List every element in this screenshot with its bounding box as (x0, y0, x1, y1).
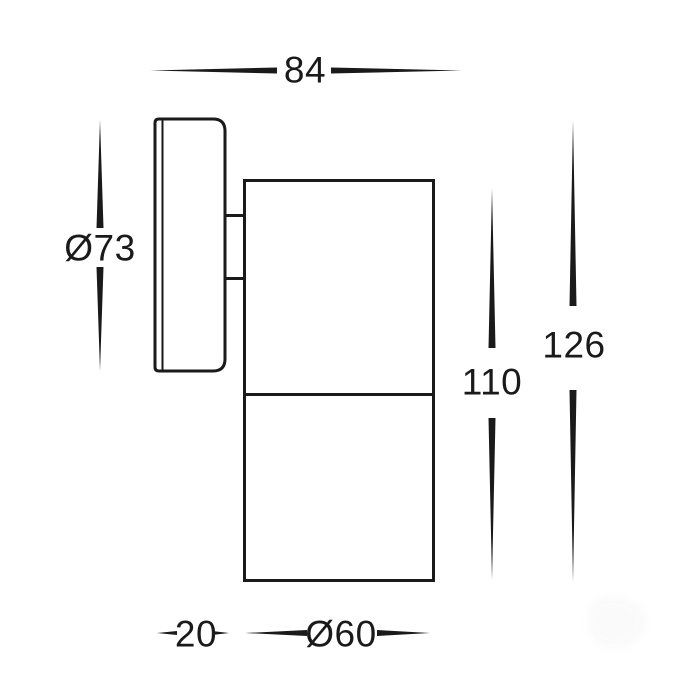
dim-60-right-taper (377, 630, 430, 636)
dim-label-overall-height: 126 (542, 327, 605, 364)
dim-60-left-taper (245, 630, 307, 636)
dim-84-left-taper (150, 68, 277, 74)
body-cylinder-outline (245, 181, 434, 581)
dim-110-bottom-taper (489, 418, 496, 580)
dim-73-bottom-taper (97, 267, 104, 371)
dim-126-bottom-taper (570, 390, 577, 582)
dim-73-top-taper (97, 120, 104, 228)
technical-drawing-canvas: 84 Ø73 110 126 20 Ø60 (0, 0, 700, 700)
dim-label-overall-depth: 84 (284, 52, 326, 89)
dim-110-top-taper (489, 188, 496, 348)
dim-label-body-height: 110 (462, 364, 523, 401)
dim-84-right-taper (331, 68, 462, 74)
dim-label-body-diameter: Ø60 (305, 616, 376, 653)
wall-plate-outline (155, 119, 225, 371)
dim-label-plate-diameter: Ø73 (64, 230, 135, 267)
dim-label-plate-depth: 20 (175, 616, 217, 653)
watermark (588, 596, 646, 648)
dim-126-top-taper (570, 120, 577, 306)
